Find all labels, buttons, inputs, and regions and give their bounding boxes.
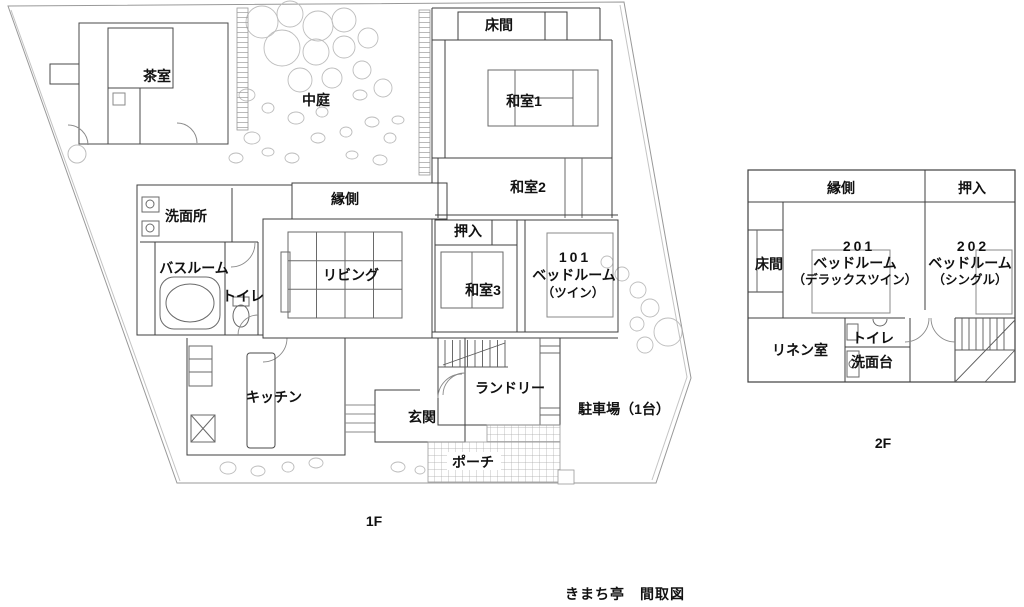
label-room201-variant: （デラックスツイン）: [793, 272, 918, 287]
label-porch: ポーチ: [452, 454, 494, 470]
label-senmenjo: 洗面所: [165, 208, 207, 224]
label-bathroom: バスルーム: [159, 260, 229, 276]
stairs-2f: [955, 318, 1015, 382]
label-engawa-1f: 縁側: [331, 191, 359, 207]
label-floor2: 2F: [875, 435, 892, 451]
floorplan-drawing: 茶室 中庭 床間 和室1 和室2 縁側 洗面所 バスルーム トイレ リビング 押…: [0, 0, 1024, 607]
label-tokonoma-1f: 床間: [485, 17, 513, 33]
label-living: リビング: [323, 267, 379, 283]
label-engawa-2f: 縁側: [827, 180, 855, 196]
label-toilet-2f: トイレ: [852, 330, 894, 346]
label-kitchen: キッチン: [246, 389, 302, 405]
bathtub: [160, 277, 220, 329]
label-parking: 駐車場（1台）: [578, 401, 670, 417]
label-genkan: 玄関: [408, 409, 436, 425]
label-washitsu1: 和室1: [506, 93, 542, 109]
label-laundry: ランドリー: [475, 380, 545, 396]
label-senmendai: 洗面台: [851, 354, 893, 370]
label-oshiire-1f: 押入: [454, 223, 482, 239]
labels-1f: 茶室 中庭 床間 和室1 和室2 縁側 洗面所 バスルーム トイレ リビング 押…: [142, 17, 670, 529]
courtyard-garden: [229, 1, 404, 165]
genkan-walls: [375, 338, 465, 442]
stepping-stones-south: [220, 458, 425, 476]
stairs-1f: [438, 340, 508, 367]
porch-hatch: [428, 425, 574, 484]
hall-steps: [345, 405, 375, 432]
label-toilet-1f: トイレ: [222, 288, 264, 304]
label-room201-type: ベッドルーム: [813, 255, 897, 271]
floor2-doors: [905, 318, 955, 342]
label-room202-type: ベッドルーム: [928, 255, 1012, 271]
label-linen: リネン室: [772, 342, 828, 358]
label-washitsu2: 和室2: [510, 179, 546, 195]
plan-title: きまち亭 間取図: [565, 586, 685, 602]
label-room201-number: 201: [843, 238, 875, 254]
tea-house: [50, 23, 228, 163]
hedge-strips: [237, 8, 430, 175]
label-room202-number: 202: [957, 238, 989, 254]
label-room101-number: 101: [559, 249, 591, 265]
label-chashitsu: 茶室: [142, 68, 171, 84]
label-nakaniwa: 中庭: [302, 92, 331, 108]
labels-2f: 縁側 押入 床間 201 ベッドルーム （デラックスツイン） 202 ベッドルー…: [755, 180, 1012, 451]
floorplan-page: 茶室 中庭 床間 和室1 和室2 縁側 洗面所 バスルーム トイレ リビング 押…: [0, 0, 1024, 607]
label-room101-type: ベッドルーム: [532, 267, 616, 283]
label-oshiire-2f: 押入: [958, 180, 986, 196]
label-room202-variant: （シングル）: [932, 272, 1007, 287]
label-room101-variant: （ツイン）: [542, 285, 605, 300]
label-floor1: 1F: [366, 513, 383, 529]
label-tokonoma-2f: 床間: [755, 256, 783, 272]
label-washitsu3: 和室3: [465, 282, 501, 298]
engawa-strip: [292, 183, 447, 219]
